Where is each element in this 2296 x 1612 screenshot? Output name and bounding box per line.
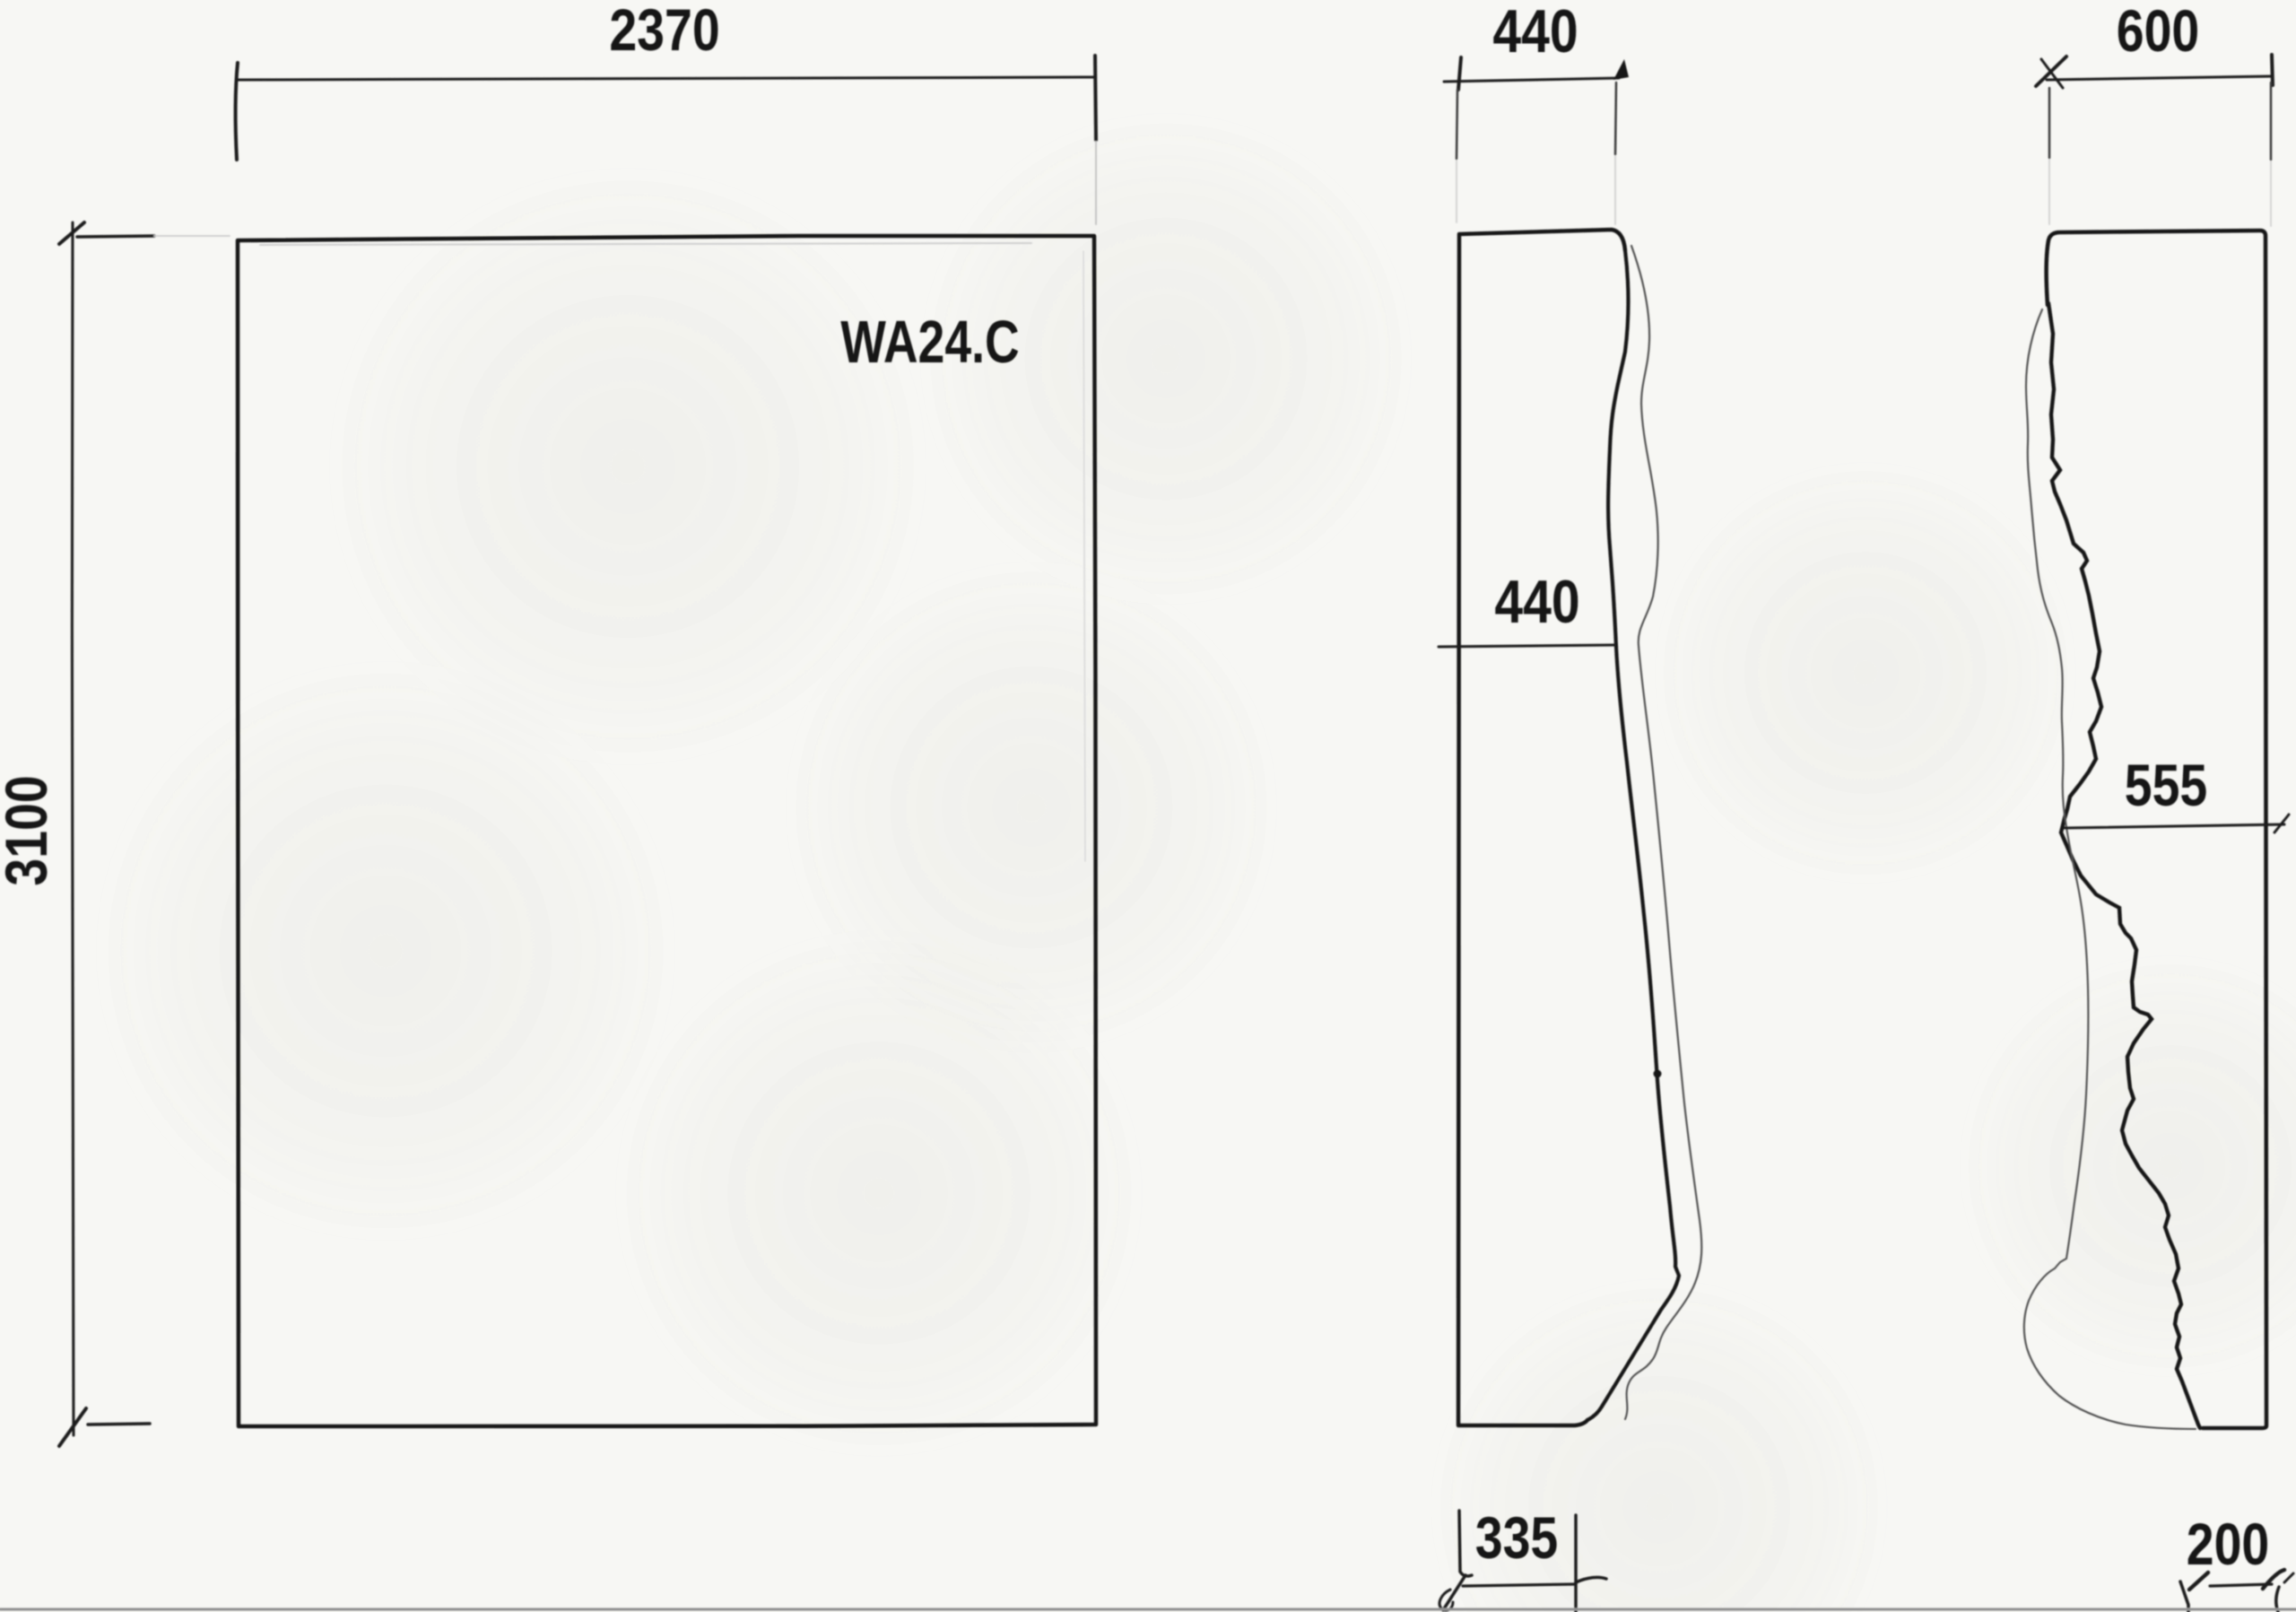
svg-text:WA24.C: WA24.C (840, 308, 1020, 375)
svg-text:2370: 2370 (609, 0, 719, 63)
svg-text:555: 555 (2125, 752, 2207, 818)
svg-text:335: 335 (1475, 1504, 1558, 1571)
svg-text:440: 440 (1492, 0, 1578, 65)
svg-text:600: 600 (2117, 0, 2199, 64)
svg-text:440: 440 (1494, 568, 1579, 636)
svg-text:3100: 3100 (0, 775, 59, 885)
svg-text:200: 200 (2187, 1511, 2269, 1577)
